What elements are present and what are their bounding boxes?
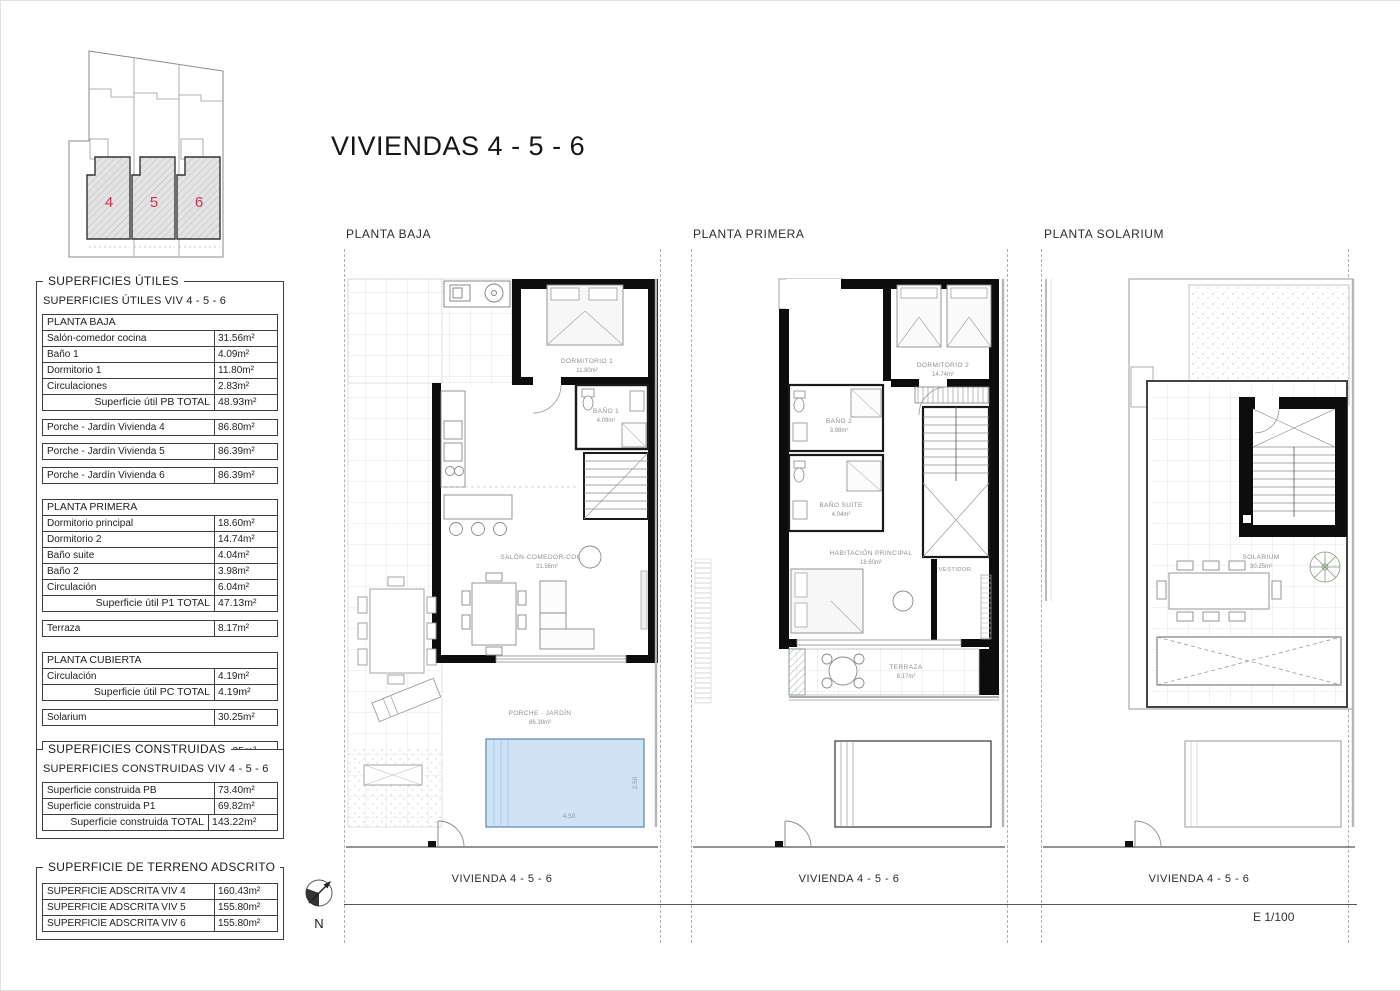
armchair <box>893 591 913 611</box>
room-label: TERRAZA <box>889 664 922 671</box>
solarium-row: Solarium 30.25m² <box>42 709 278 726</box>
floor-plan-baja: DORMITORIO 1 11.80m² BAÑO 1 4.09m² SALÓN… <box>344 271 660 851</box>
stairs <box>923 407 989 557</box>
tv-unit <box>641 571 647 629</box>
table-row: SUPERFICIE ADSCRITA VIV 4 160.43m² <box>43 884 277 899</box>
porche-row-viv6: Porche - Jardín Vivienda 6 86.39m² <box>42 467 278 484</box>
room-label: SOLARIUM <box>1242 554 1279 561</box>
table-row: Circulación 4.19m² <box>43 668 277 684</box>
plan-title-primera: PLANTA PRIMERA <box>693 227 805 241</box>
gate-post <box>1125 841 1133 847</box>
plan-title-baja: PLANTA BAJA <box>346 227 431 241</box>
outdoor-table <box>358 577 436 684</box>
table-row: Dormitorio principal 18.60m² <box>43 515 277 531</box>
table-row: Dormitorio 1 11.80m² <box>43 362 277 378</box>
room-area: 86.39m² <box>529 720 551 726</box>
neighbour-roof <box>695 559 711 703</box>
built-areas-subtitle: SUPERFICIES CONSTRUIDAS VIV 4 - 5 - 6 <box>43 763 277 775</box>
room-area: 8.17m² <box>897 674 916 680</box>
drawing-sheet: 4 5 6 SUPERFICIES ÚTILES SUPERFICIES ÚTI… <box>0 0 1400 991</box>
room-label: BAÑO 1 <box>593 406 619 415</box>
planta-primera-table: PLANTA PRIMERA Dormitorio principal 18.6… <box>42 499 278 612</box>
built-areas-box-title: SUPERFICIES CONSTRUIDAS <box>43 742 231 756</box>
room-area: 31.56m² <box>536 564 558 570</box>
room-label: PORCHE - JARDÍN <box>508 708 571 717</box>
table-row: Superficie construida P1 69.82m² <box>43 798 277 814</box>
built-areas-table: Superficie construida PB 73.40m² Superfi… <box>42 782 278 831</box>
table-total-row: Superficie construida TOTAL 143.22m² <box>43 814 277 830</box>
north-compass: N <box>297 875 341 933</box>
room-area: 14.74m² <box>932 372 954 378</box>
room-label: BAÑO 2 <box>826 416 852 425</box>
vivienda-label-solarium: VIVIENDA 4 - 5 - 6 <box>1041 873 1357 885</box>
room-label: HABITACIÓN PRINCIPAL <box>830 548 913 557</box>
table-row: Circulación 6.04m² <box>43 579 277 595</box>
tree <box>1310 552 1340 582</box>
room-label: DORMITORIO 2 <box>917 362 969 369</box>
gate-swing <box>1135 821 1161 847</box>
pool-outline <box>1185 741 1341 827</box>
room-area: 11.80m² <box>576 368 598 374</box>
plan-title-solarium: PLANTA SOLARIUM <box>1044 227 1164 241</box>
stair-core <box>1239 397 1347 537</box>
table-row: Baño 1 4.09m² <box>43 346 277 362</box>
vivienda-label-primera: VIVIENDA 4 - 5 - 6 <box>691 873 1007 885</box>
house-number-5: 5 <box>150 194 158 211</box>
table-row: Dormitorio 2 14.74m² <box>43 531 277 547</box>
table-header-row: PLANTA PRIMERA <box>43 500 277 515</box>
floor-plan-solarium: SOLARIUM 30.25m² <box>1041 271 1357 851</box>
table-total-row: Superficie útil PC TOTAL 4.19m² <box>43 684 277 700</box>
gate-post <box>775 841 783 847</box>
planter <box>789 649 805 695</box>
room-label: BAÑO SUITE <box>819 500 863 509</box>
street-baseline <box>344 904 1357 905</box>
room-area: 4.09m² <box>597 418 616 424</box>
table-row: Superficie construida PB 73.40m² <box>43 783 277 798</box>
gate-swing <box>785 821 811 847</box>
useful-areas-subtitle: SUPERFICIES ÚTILES VIV 4 - 5 - 6 <box>43 295 277 307</box>
table-row: Baño suite 4.04m² <box>43 547 277 563</box>
table-header-row: PLANTA CUBIERTA <box>43 653 277 668</box>
house-number-4: 4 <box>105 194 113 211</box>
room-label: VESTIDOR <box>939 567 972 573</box>
room-area: 3.98m² <box>830 428 849 434</box>
room-area: 4.04m² <box>832 512 851 518</box>
plot-boundary-line <box>1007 249 1008 943</box>
planta-cubierta-table: PLANTA CUBIERTA Circulación 4.19m² Super… <box>42 652 278 701</box>
useful-areas-box-title: SUPERFICIES ÚTILES <box>43 274 184 288</box>
built-areas-box: SUPERFICIES CONSTRUIDAS SUPERFICIES CONS… <box>36 749 284 839</box>
scale-label: E 1/100 <box>1253 910 1294 924</box>
plot-boundary-line <box>660 249 661 943</box>
vivienda-label-baja: VIVIENDA 4 - 5 - 6 <box>344 873 660 885</box>
porche-row-viv4: Porche - Jardín Vivienda 4 86.80m² <box>42 419 278 436</box>
gate-post <box>428 841 436 847</box>
pool-width-dim: 4.50 <box>563 813 576 820</box>
table-header-row: PLANTA BAJA <box>43 315 277 330</box>
table-total-row: Superficie útil PB TOTAL 48.93m² <box>43 394 277 410</box>
terraza-row: Terraza 8.17m² <box>42 620 278 637</box>
table-row: SUPERFICIE ADSCRITA VIV 6 155.80m² <box>43 915 277 931</box>
bed <box>791 569 863 633</box>
land-areas-table: SUPERFICIE ADSCRITA VIV 4 160.43m² SUPER… <box>42 883 278 932</box>
bed <box>547 285 623 345</box>
house-number-6: 6 <box>195 194 203 211</box>
pool: 4.50 2.50 <box>486 739 644 827</box>
useful-areas-box: SUPERFICIES ÚTILES SUPERFICIES ÚTILES VI… <box>36 281 284 770</box>
land-areas-box-title: SUPERFICIE DE TERRENO ADSCRITO <box>43 860 280 874</box>
planta-baja-table: PLANTA BAJA Salón-comedor cocina 31.56m²… <box>42 314 278 411</box>
room-label: DORMITORIO 1 <box>561 358 613 365</box>
page-title: VIVIENDAS 4 - 5 - 6 <box>331 131 585 162</box>
glazing <box>797 640 961 645</box>
porche-row-viv5: Porche - Jardín Vivienda 5 86.39m² <box>42 443 278 460</box>
room-area: 18.60m² <box>860 560 882 566</box>
site-plan: 4 5 6 <box>51 31 236 271</box>
table-row: Salón-comedor cocina 31.56m² <box>43 330 277 346</box>
table-row: SUPERFICIE ADSCRITA VIV 5 155.80m² <box>43 899 277 915</box>
pool-outline <box>835 741 991 827</box>
closet <box>981 575 991 639</box>
floor-plan-primera: DORMITORIO 2 14.74m² BAÑO 2 3.98m² BAÑO … <box>691 271 1007 851</box>
pergola <box>1157 637 1341 685</box>
stairs <box>584 453 648 519</box>
wardrobe <box>915 387 989 403</box>
lounger <box>364 765 422 785</box>
land-areas-box: SUPERFICIE DE TERRENO ADSCRITO SUPERFICI… <box>36 867 284 940</box>
armchair <box>579 546 601 568</box>
table-row: Circulaciones 2.83m² <box>43 378 277 394</box>
north-label: N <box>314 916 323 931</box>
table-row: Baño 2 3.98m² <box>43 563 277 579</box>
table-total-row: Superficie útil P1 TOTAL 47.13m² <box>43 595 277 611</box>
kitchen-counter <box>444 281 510 307</box>
pool-height-dim: 2.50 <box>632 776 639 789</box>
dining-table <box>462 573 526 655</box>
room-area: 30.25m² <box>1250 564 1272 570</box>
terrace <box>789 649 979 695</box>
